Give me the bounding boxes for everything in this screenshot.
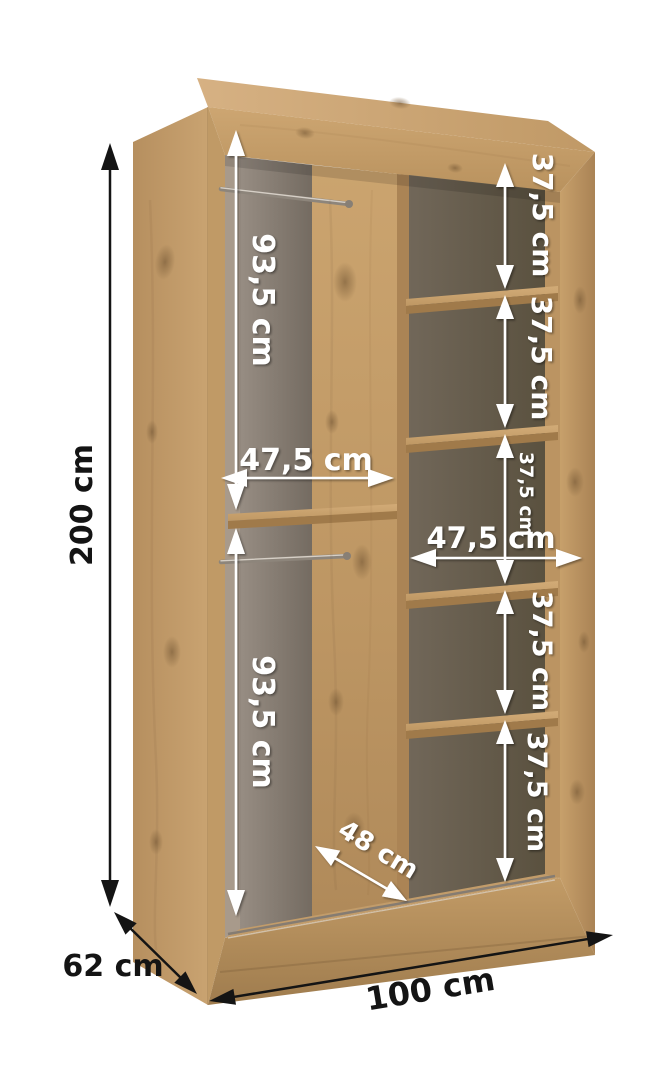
shelf-gap-label-1: 37,5 cm <box>526 153 559 278</box>
arrowhead-up <box>101 143 119 170</box>
left-top-height-label: 93,5 cm <box>245 233 280 367</box>
left-width-label: 47,5 cm <box>239 443 373 478</box>
rail-end-cap <box>343 552 351 560</box>
left-side-panel <box>133 107 208 1005</box>
shelf-gap-label-4: 37,5 cm <box>526 591 557 711</box>
dimension-diagram-stage: 200 cm 62 cm 100 cm 93,5 cm <box>0 0 670 1080</box>
arrowhead-right <box>586 931 613 947</box>
height-dimension-arrow <box>101 143 119 907</box>
arrowhead-down <box>101 880 119 907</box>
center-divider-front-edge <box>397 174 409 901</box>
shelf-gap-label-5: 37,5 cm <box>521 732 552 852</box>
depth-dimension-label: 62 cm <box>62 949 163 984</box>
shelf-gap-label-2: 37,5 cm <box>525 296 558 421</box>
rail-end-cap <box>345 200 353 208</box>
right-width-label: 47,5 cm <box>426 521 555 555</box>
wardrobe-dimension-diagram: 200 cm 62 cm 100 cm 93,5 cm <box>0 0 670 1080</box>
front-frame-left-stile <box>208 107 225 1005</box>
left-bottom-height-label: 93,5 cm <box>245 655 280 789</box>
height-dimension-label: 200 cm <box>65 444 100 566</box>
